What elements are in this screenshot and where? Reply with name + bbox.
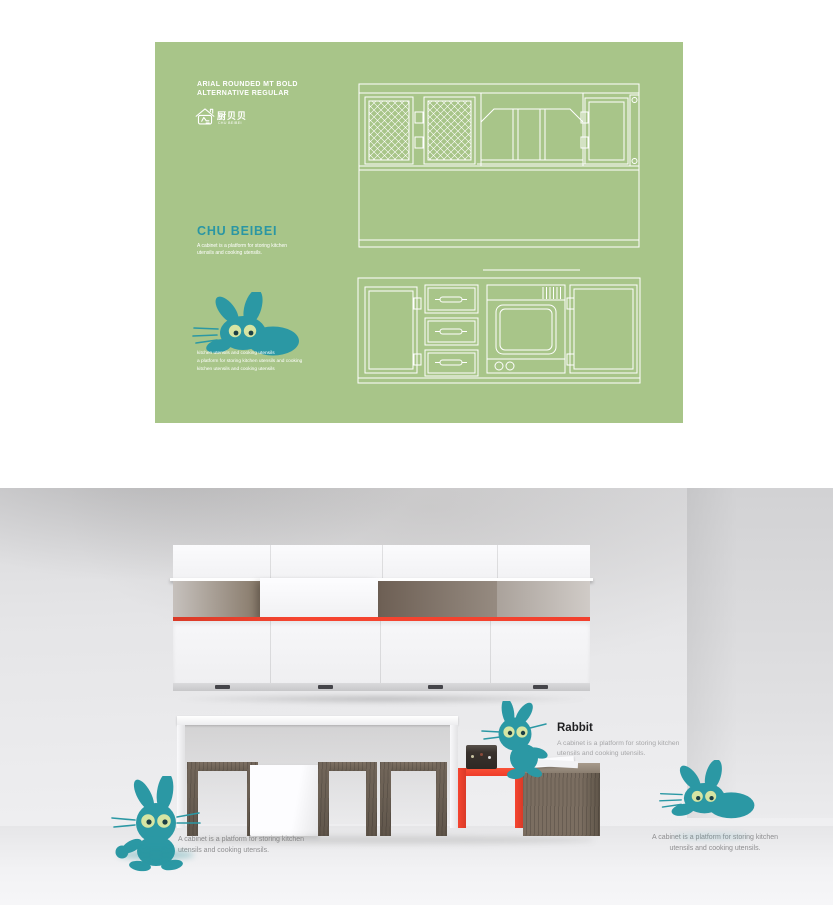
wood-stool [380, 762, 447, 836]
poster-caption-line-1: kitchen utensils and cooking utensils [197, 350, 302, 358]
rabbit-description-line-1: A cabinet is a platform for storing kitc… [557, 739, 697, 749]
rabbit-description: A cabinet is a platform for storing kitc… [557, 739, 697, 758]
wood-stool [318, 762, 377, 836]
poster-description-line-1: A cabinet is a platform for storing kitc… [197, 243, 287, 250]
door-handle [428, 685, 443, 689]
stool-leg [366, 762, 377, 836]
poster-title: CHU BEIBEI [197, 224, 277, 238]
stool-leg [436, 762, 447, 836]
cabinet-open-recess [173, 581, 590, 617]
wall-cabinet-drawing [359, 84, 639, 247]
floor-shadow [185, 836, 595, 844]
caption-left-line-2: utensils and cooking utensils. [178, 845, 304, 856]
spec-line-1: ARIAL ROUNDED MT BOLD [197, 81, 298, 90]
rabbit-mascot-icon [658, 760, 758, 822]
box-detail [471, 755, 474, 758]
poster-description-line-2: utensils and cooking utensils. [197, 250, 287, 257]
stool-leg [458, 768, 466, 828]
cabinet-door-row [173, 621, 590, 684]
caption-right-line-2: utensils and cooking utensils. [645, 844, 785, 855]
house-logo-icon [195, 106, 215, 128]
desk-top [177, 716, 458, 725]
cabinet-underside [173, 683, 590, 691]
typography-spec: ARIAL ROUNDED MT BOLD ALTERNATIVE REGULA… [197, 81, 298, 98]
panel-seam [382, 545, 383, 579]
door-seam [490, 621, 491, 684]
door-handle [533, 685, 548, 689]
rabbit-reflection [118, 850, 194, 860]
poster-caption-line-2: a platform for storing kitchen utensils … [197, 358, 302, 366]
recess-section [378, 581, 497, 617]
wall-cabinet [173, 545, 590, 691]
rabbit-mascot-icon [191, 292, 303, 358]
recess-section [497, 581, 590, 617]
rabbit-label: Rabbit [557, 722, 593, 734]
recess-section [173, 581, 260, 617]
panel-seam [497, 545, 498, 579]
poster-board: ARIAL ROUNDED MT BOLD ALTERNATIVE REGULA… [155, 42, 683, 423]
door-seam [380, 621, 381, 684]
poster-caption-line-3: kitchen utensils and cooking utensils [197, 366, 302, 374]
door-handle [318, 685, 333, 689]
logo-latin-name: CHU BEIBEI [218, 121, 242, 125]
base-cabinet-drawing [358, 270, 640, 383]
door-handle [215, 685, 230, 689]
poster-description: A cabinet is a platform for storing kitc… [197, 243, 287, 257]
white-cube-stool [250, 765, 318, 836]
desk-leg [450, 725, 458, 828]
rabbit-description-line-2: utensils and cooking utensils. [557, 749, 697, 759]
stool-leg [318, 762, 329, 836]
stool-leg [380, 762, 391, 836]
cabinet-elevation-drawings [353, 82, 645, 384]
door-seam [270, 621, 271, 684]
spec-line-2: ALTERNATIVE REGULAR [197, 90, 298, 99]
protruding-cabinet-box [260, 578, 378, 617]
panel-seam [270, 545, 271, 579]
cabinet-top-row [173, 545, 590, 579]
kitchen-render: Rabbit A cabinet is a platform for stori… [0, 488, 833, 905]
poster-caption: kitchen utensils and cooking utensils a … [197, 350, 302, 373]
rabbit-mascot-icon [478, 701, 560, 781]
rabbit-reflection [672, 833, 750, 840]
